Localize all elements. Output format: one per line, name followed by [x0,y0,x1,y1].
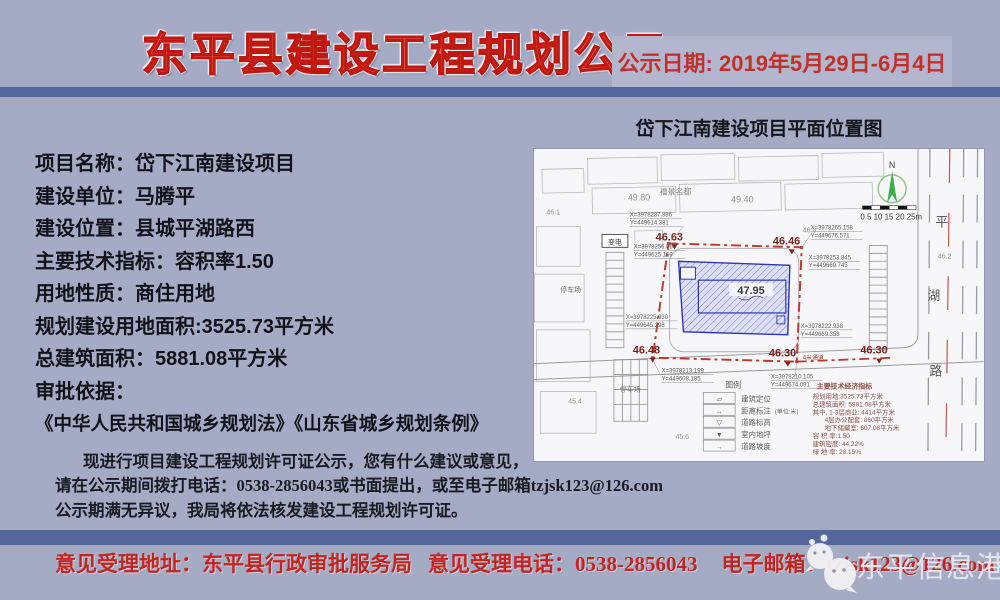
coord-label: Y=449676.571 [811,233,851,239]
info-label: 建设单位： [35,186,135,208]
coord-label: X=3978225.930 [626,315,669,321]
parking-label-2: 停车场 [620,384,641,393]
coord-label: Y=449669.358 [801,332,841,338]
info-label: 建设位置： [35,218,135,240]
notice-line-2: 请在公示期间拨打电话：0538-2856043或书面提出，或至电子邮箱tzjsk… [55,474,555,499]
watermark-text: 东平信息港 [856,544,1000,586]
spot-elevation: 46.2 [938,253,952,260]
info-value: 容积率1.50 [175,251,274,273]
transformer-box: 变电 [602,234,628,247]
road-name: 平 湖 路 [927,215,948,379]
info-label: 规划建设用地面积: [35,316,202,338]
legend-label: 道路坡度 [741,441,771,451]
notice-line-1: 现进行项目建设工程规划许可证公示，您有什么建议或意见， [55,450,555,475]
road-name-char: 路 [929,364,942,379]
corner-elevation: 46.46 [773,235,800,247]
coord-label: Y=449614.381 [630,221,670,227]
legend-symbol: ↔ [716,408,723,415]
corner-elevation: 46.30 [860,345,887,357]
spot-elevation: 46.1 [546,210,560,217]
legend-symbol: → [716,444,723,451]
footer-address-label: 意见受理地址： [55,552,202,576]
top-divider-band [0,87,1000,97]
legend-symbol: ▱ [717,396,723,403]
info-label: 项目名称： [35,153,135,175]
info-label: 主要技术指标： [35,251,175,273]
coord-label: X=3978287.886 [630,213,673,219]
legend-symbol: ▼ [716,432,723,439]
date-panel: 公示日期: 2019年5月29日-6月4日 [612,36,952,87]
info-row-floor-area: 总建筑面积：5881.08平方米 [35,343,540,376]
spot-elevation: 46.0 [803,227,817,234]
info-value: 5881.08平方米 [155,348,287,370]
footer-address: 东平县行政审批服务局 [202,552,412,576]
corner-elevation: 46.63 [656,231,683,243]
info-value: 马腾平 [135,186,195,208]
info-value: 3525.73平方米 [202,316,334,338]
coord-label: Y=449669.745 [809,263,849,269]
legend-unit-note: (单位:米) [775,407,798,415]
indicator-line: 地下储藏室: 607.08平方米 [825,423,900,432]
building-footprint: 47.95 [679,261,790,335]
notice-line-3: 公示期满无异议，我局将依法核发建设工程规划许可证。 [55,499,555,524]
spot-elevation: 45.4 [568,398,582,405]
indicator-line: 总建筑面积: 5881.08平方米 [813,399,892,408]
spot-elevation: 49.80 [628,193,650,203]
indicator-line: 绿 地 率: 28.15% [813,447,862,456]
spot-elevation: 45.6 [676,434,690,441]
fire-lane-label: 4米通道 [803,354,824,362]
notice-paragraph: 现进行项目建设工程规划许可证公示，您有什么建议或意见， 请在公示期间拨打电话：0… [55,450,555,524]
coord-label: X=3978213.199 [662,369,705,375]
corner-elevation: 46.30 [769,348,796,360]
indicators-title: 主要技术经济指标 [817,381,873,390]
coord-label: Y=449608.185 [662,377,702,383]
coord-label: X=3978253.845 [809,255,852,261]
wechat-logo-icon [800,532,862,596]
info-label: 用地性质： [35,283,135,305]
parking-label-1: 停车场 [560,285,581,294]
info-row-builder: 建设单位：马腾平 [35,181,540,214]
site-plan-svg: 47.95 46.63 46.46 46.48 46.30 46.30 [534,149,984,461]
page-title: 东平县建设工程规划公示 [142,18,670,83]
legend-label: 室内地坪 [741,429,771,439]
info-value: 县城平湖路西 [135,218,255,240]
info-row-laws: 《中华人民共和国城乡规划法》《山东省城乡规划条例》 [35,408,540,441]
technical-indicators: 主要技术经济指标 规划用地:3525.73平方米 总建筑面积: 5881.08平… [813,381,900,456]
indicator-line: 规划用地:3525.73平方米 [813,391,884,400]
legend-title: 图例 [725,379,741,389]
legend-label: 道路标高 [741,417,771,427]
indicator-line: 4层办公配套: 860平方米 [825,415,895,424]
road-name-char: 平 [935,215,948,230]
info-row-project-name: 项目名称：岱下江南建设项目 [35,148,540,181]
compass-north-label: N [889,160,895,170]
compass: N [878,160,906,203]
scale-bar: 0 5 10 15 20 25m [860,206,922,222]
footer-phone-label: 意见受理电话： [428,552,575,576]
info-row-land-use: 用地性质：商住用地 [35,278,540,311]
transformer-label: 变电 [608,237,622,246]
site-plan-map: 47.95 46.63 46.46 46.48 46.30 46.30 [533,148,985,462]
publicity-date: 公示日期: 2019年5月29日-6月4日 [618,46,947,78]
project-info-block: 项目名称：岱下江南建设项目 建设单位：马腾平 建设位置：县城平湖路西 主要技术指… [35,148,540,523]
coord-label: Y=449645.298 [626,323,666,329]
coord-label: X=3978256.060 [634,244,677,250]
corner-elevation: 46.48 [633,345,660,357]
notice-page: 东平县建设工程规划公示 公示日期: 2019年5月29日-6月4日 项目名称：岱… [0,0,1000,600]
building-elevation-label: 47.95 [737,285,764,297]
road-name-char: 湖 [927,288,940,303]
estate-name-label: 福景名都 [660,187,692,197]
footer-phone: 0538-2856043 [575,552,698,576]
indicator-line: 其中, 1-3层商业: 4414平方米 [813,407,896,416]
legend-label: 距离标注 [741,405,771,415]
info-row-land-area: 规划建设用地面积:3525.73平方米 [35,311,540,344]
coord-label: Y=449625.159 [634,252,674,258]
info-row-tech-index: 主要技术指标：容积率1.50 [35,246,540,279]
legend-label: 建筑定位 [741,393,771,403]
coord-label: X=3978265.158 [811,225,854,231]
info-row-location: 建设位置：县城平湖路西 [35,213,540,246]
coord-label: Y=449674.091 [771,382,811,388]
map-legend: 图例 ▱ ↔ ▽ ▼ → 建筑定位 距离标注 道路标高 室内地坪 道路坡度 (单… [703,379,798,451]
watermark: 东平信息港 [790,530,1000,598]
legend-symbol: ▽ [717,420,723,427]
info-row-approval-basis: 审批依据： [35,376,540,409]
coord-label: X=3978210.105 [771,375,814,381]
background-buildings-left [534,227,596,434]
coord-label: X=3978222.938 [801,324,844,330]
info-value: 岱下江南建设项目 [135,153,295,175]
site-plan-title: 岱下江南建设项目平面位置图 [533,114,985,141]
indicator-line: 容 积 率:1.50 [813,431,851,440]
scale-bar-label: 0 5 10 15 20 25m [860,213,922,222]
info-value: 商住用地 [135,283,215,305]
info-label: 审批依据： [35,381,135,403]
spot-elevation: 49.40 [731,195,753,205]
road-center-line [946,149,950,457]
indicator-line: 建筑密度: 44.22% [813,439,864,448]
info-label: 总建筑面积： [35,348,155,370]
